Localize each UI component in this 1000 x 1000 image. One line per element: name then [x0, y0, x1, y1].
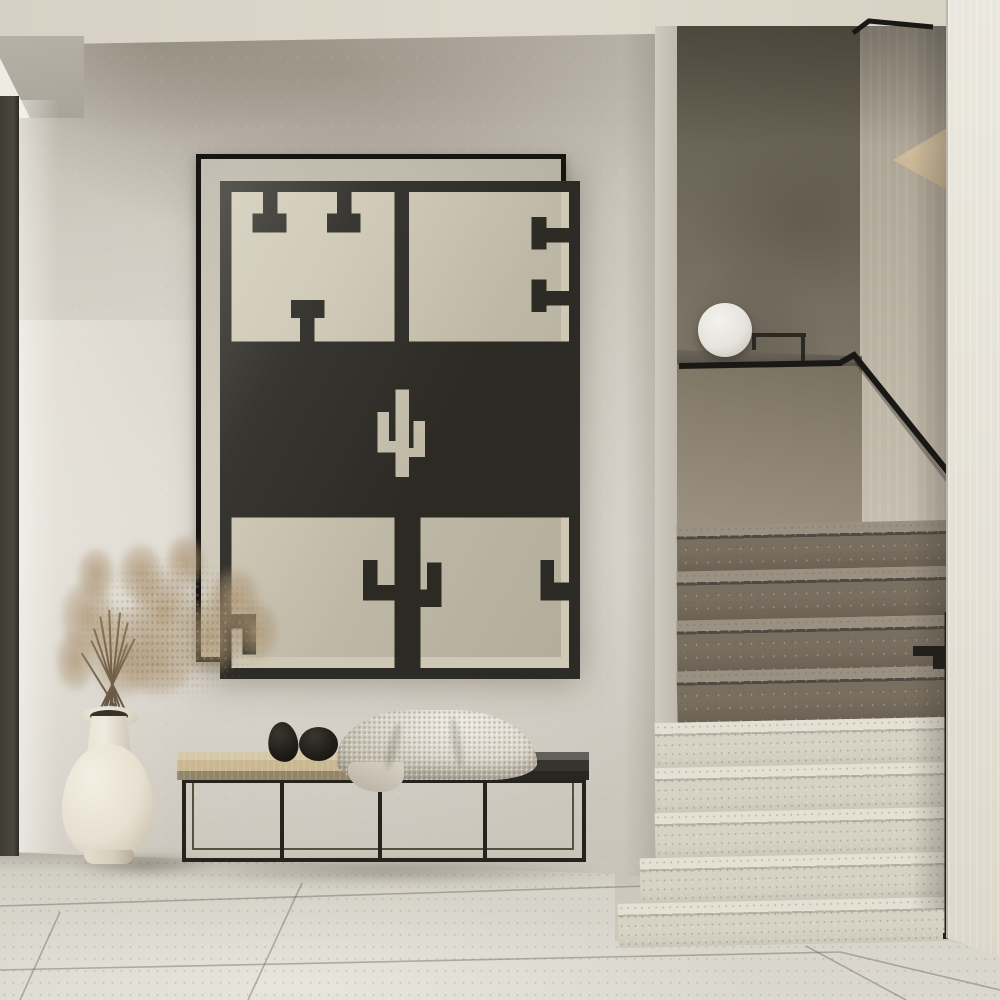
- bench-frame-divider: [483, 783, 487, 858]
- step-lower-4: [640, 852, 948, 903]
- stair-opening-jamb: [655, 26, 677, 770]
- stairwell: [615, 0, 952, 941]
- step-lower-1: [655, 717, 948, 768]
- vase-with-pampas: [30, 520, 330, 880]
- stairwell-top-shadow: [677, 26, 947, 146]
- step-upper-3: [677, 615, 948, 672]
- lamp-stand-leg: [801, 336, 805, 362]
- bench-frame-divider: [378, 783, 382, 858]
- foreground-wall: [946, 0, 1000, 960]
- step-upper-2: [677, 566, 948, 621]
- lamp-stand-bar: [752, 333, 806, 337]
- step-upper-1: [677, 520, 948, 572]
- step-lower-3: [655, 807, 948, 858]
- step-lower-5: [618, 897, 948, 948]
- stair-right-shadow: [911, 26, 947, 909]
- hallway-scene: [0, 0, 1000, 1000]
- vase-foot: [84, 850, 134, 864]
- pampas-grain: [40, 528, 310, 728]
- half-wall: [677, 366, 862, 530]
- door-frame: [0, 96, 19, 856]
- globe-lamp: [698, 303, 752, 357]
- vase-body: [62, 744, 154, 860]
- step-upper-4: [677, 666, 948, 723]
- step-lower-2: [655, 762, 948, 813]
- lamp-stand-leg-short: [752, 336, 756, 350]
